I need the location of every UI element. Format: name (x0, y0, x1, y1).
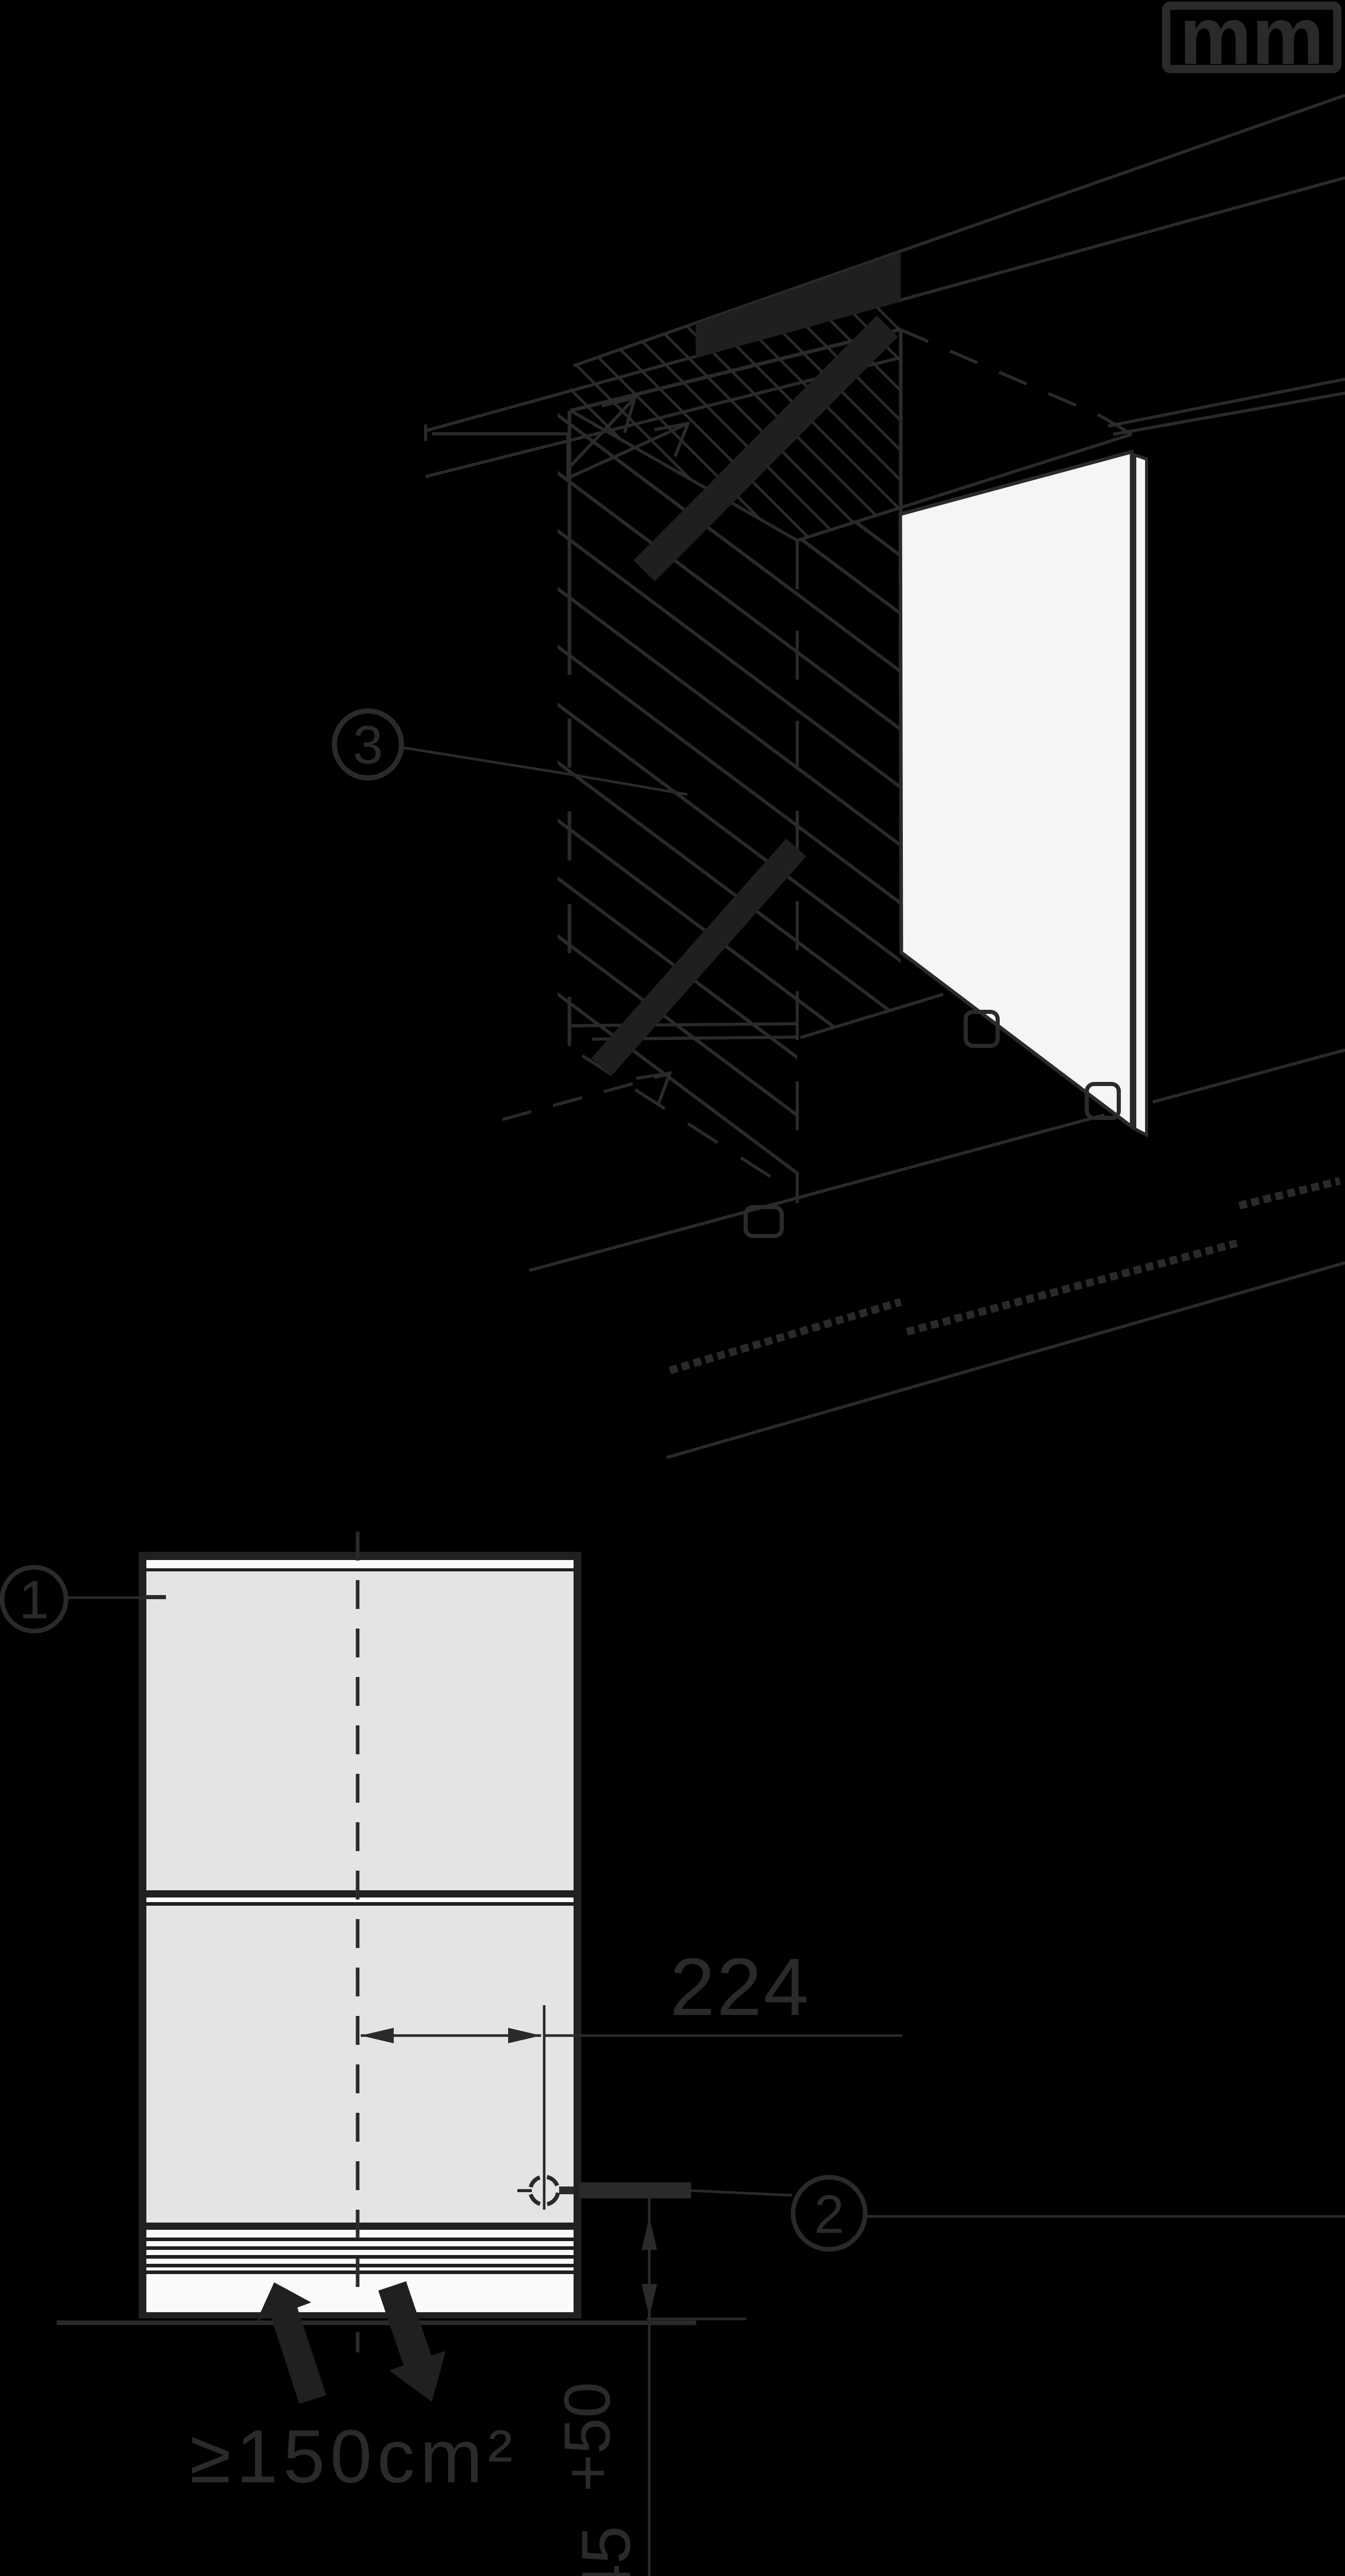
svg-text:3: 3 (353, 715, 383, 775)
svg-text:1: 1 (19, 1570, 49, 1630)
svg-text:+50: +50 (551, 2382, 624, 2492)
svg-text:≥150cm²: ≥150cm² (190, 2414, 518, 2498)
svg-text:224: 224 (670, 1942, 811, 2032)
svg-text:145: 145 (568, 2526, 645, 2576)
svg-text:mm: mm (1180, 0, 1324, 81)
svg-text:2: 2 (814, 2184, 844, 2245)
